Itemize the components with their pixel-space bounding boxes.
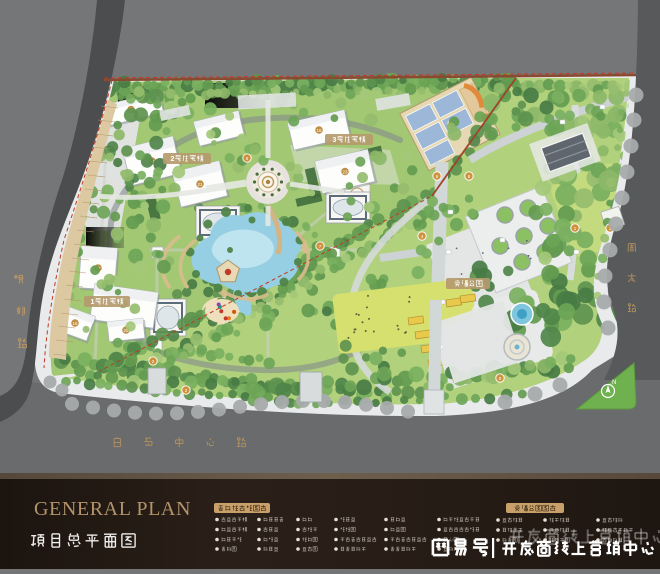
svg-text:N: N	[612, 380, 616, 386]
svg-text:21: 21	[197, 182, 203, 187]
svg-text:GENERAL PLAN: GENERAL PLAN	[34, 498, 191, 520]
svg-text:16: 16	[72, 321, 78, 326]
svg-text:16: 16	[316, 128, 322, 133]
svg-text:3: 3	[333, 137, 337, 144]
svg-text:23: 23	[342, 169, 348, 174]
svg-text:2: 2	[171, 156, 175, 163]
svg-text:1: 1	[91, 299, 95, 306]
